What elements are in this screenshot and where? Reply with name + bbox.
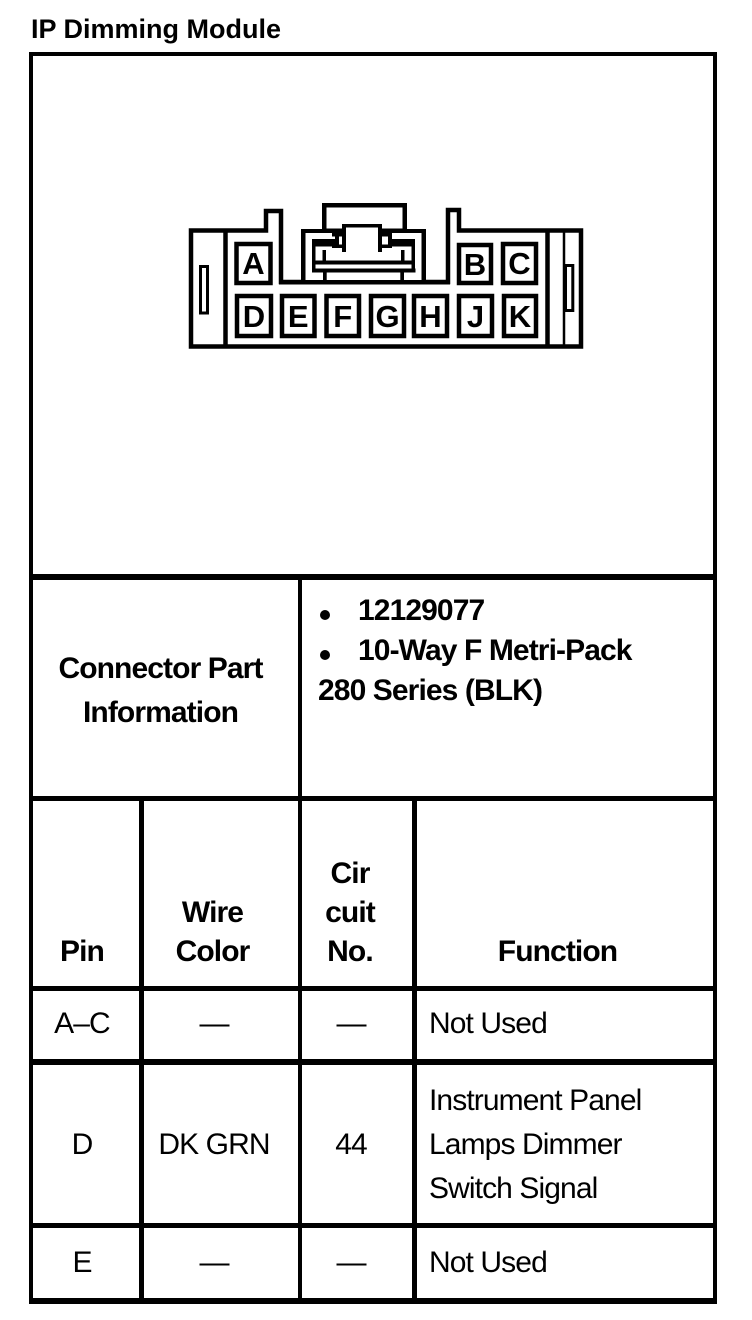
svg-text:E: E [288, 299, 309, 334]
svg-text:D: D [243, 299, 265, 334]
svg-text:J: J [467, 299, 484, 334]
svg-text:K: K [509, 299, 532, 334]
svg-text:H: H [419, 299, 441, 334]
svg-text:A: A [242, 246, 264, 281]
svg-text:B: B [464, 247, 486, 282]
svg-text:F: F [333, 299, 352, 334]
svg-text:C: C [508, 246, 530, 281]
svg-text:G: G [375, 299, 399, 334]
